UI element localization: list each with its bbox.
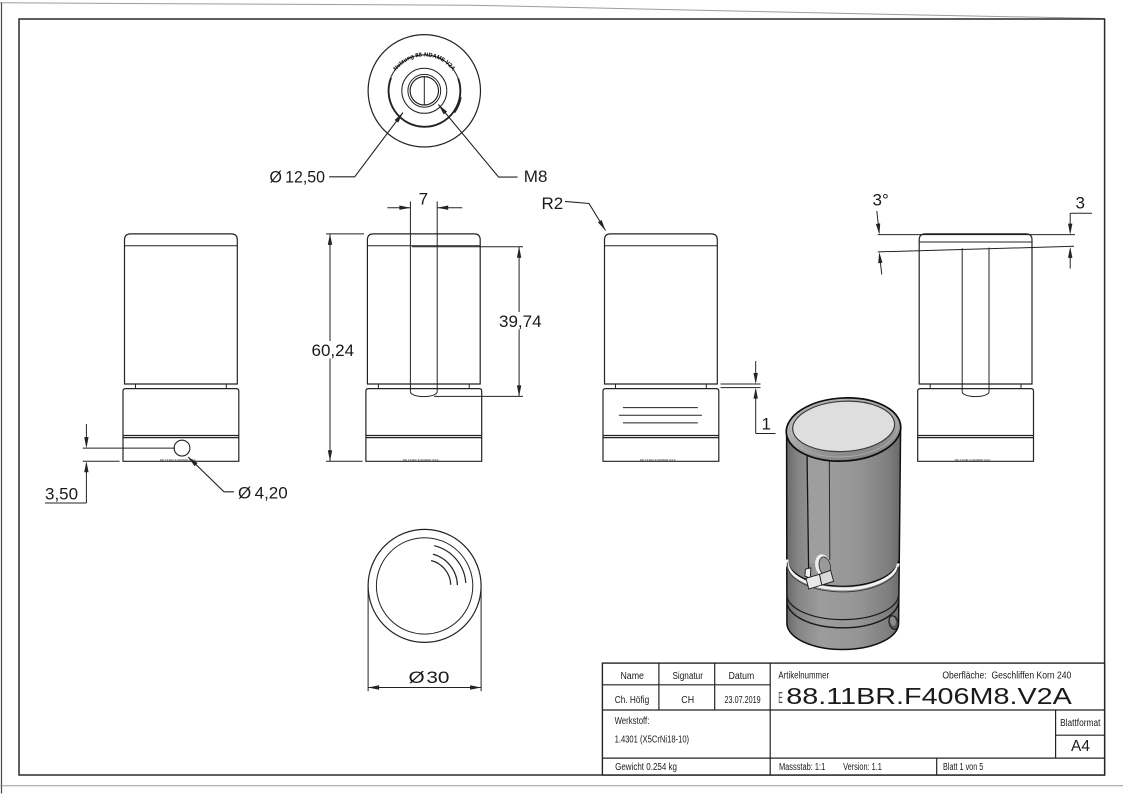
svg-text:Werkstoff:: Werkstoff: xyxy=(615,716,650,727)
svg-text:3: 3 xyxy=(1076,194,1085,213)
svg-text:3,50: 3,50 xyxy=(45,485,78,504)
svg-text:88.11BR.F406M8.V2A: 88.11BR.F406M8.V2A xyxy=(786,683,1072,709)
svg-text:M8: M8 xyxy=(524,167,548,186)
svg-text:1.4301 (X5CrNi18-10): 1.4301 (X5CrNi18-10) xyxy=(615,734,690,745)
svg-text:R2: R2 xyxy=(542,194,564,213)
svg-text:88.11BR.F406M8.V2A: 88.11BR.F406M8.V2A xyxy=(640,458,677,462)
svg-text:Ø 4,20: Ø 4,20 xyxy=(238,484,288,503)
svg-text:23.07.2019: 23.07.2019 xyxy=(725,695,761,706)
svg-text:Ø 12,50: Ø 12,50 xyxy=(270,167,326,186)
svg-text:Massstab: 1:1: Massstab: 1:1 xyxy=(779,762,825,773)
svg-text:3°: 3° xyxy=(873,191,889,210)
svg-text:Ch. Höfig: Ch. Höfig xyxy=(615,695,650,706)
svg-text:Artikelnummer: Artikelnummer xyxy=(778,670,829,681)
svg-text:Name: Name xyxy=(620,671,644,682)
svg-text:88.11BR.F406M8.V2A: 88.11BR.F406M8.V2A xyxy=(955,458,992,462)
svg-text:CH: CH xyxy=(681,695,694,706)
svg-text:39,74: 39,74 xyxy=(499,312,542,331)
svg-text:Oberfläche: Geschliffen Korn: Oberfläche: Geschliffen Korn 240 xyxy=(942,670,1071,681)
svg-text:Datum: Datum xyxy=(729,671,755,682)
svg-text:E: E xyxy=(778,689,783,707)
svg-text:Signatur: Signatur xyxy=(672,671,703,682)
svg-text:1: 1 xyxy=(762,415,771,434)
svg-text:Ø 30: Ø 30 xyxy=(409,668,450,687)
svg-text:A4: A4 xyxy=(1071,738,1090,755)
svg-text:7: 7 xyxy=(419,189,428,208)
svg-text:Blatt 1 von 5: Blatt 1 von 5 xyxy=(943,762,984,773)
svg-text:88.11BR.F406M8.V2A: 88.11BR.F406M8.V2A xyxy=(403,458,440,462)
svg-text:Version: 1.1: Version: 1.1 xyxy=(843,762,882,773)
svg-text:60,24: 60,24 xyxy=(312,341,355,360)
svg-text:Gewicht 0.254 kg: Gewicht 0.254 kg xyxy=(615,762,677,773)
svg-text:Blattformat: Blattformat xyxy=(1060,718,1101,729)
